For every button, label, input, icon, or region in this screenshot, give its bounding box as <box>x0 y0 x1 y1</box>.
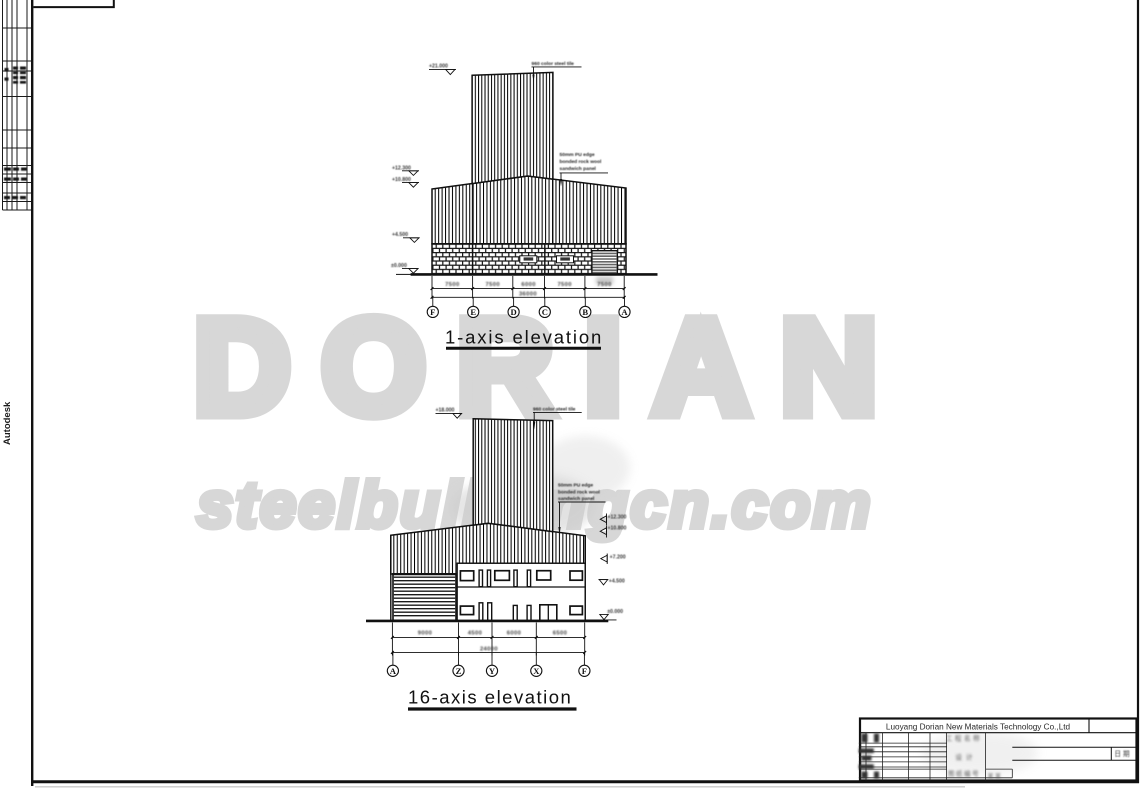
svg-text:960 color steel tile: 960 color steel tile <box>533 407 576 413</box>
svg-text:7500: 7500 <box>486 282 501 288</box>
svg-text:D: D <box>510 307 516 317</box>
svg-text:+12.300: +12.300 <box>608 515 627 521</box>
svg-text:F: F <box>430 307 435 317</box>
svg-text:16-axis elevation: 16-axis elevation <box>408 687 572 708</box>
svg-text:50mm PU edge: 50mm PU edge <box>558 483 593 489</box>
svg-text:50mm PU edge: 50mm PU edge <box>560 152 595 158</box>
svg-text:Luoyang Dorian New Materials T: Luoyang Dorian New Materials Technology … <box>886 722 1071 731</box>
svg-text:6000: 6000 <box>521 282 536 288</box>
svg-text:+10.800: +10.800 <box>608 525 627 531</box>
svg-text:7500: 7500 <box>597 282 612 288</box>
svg-text:7500: 7500 <box>557 282 572 288</box>
svg-text:+21.000: +21.000 <box>429 64 448 70</box>
svg-text:日期: 日期 <box>1114 750 1131 758</box>
svg-text:960 color steel tile: 960 color steel tile <box>532 61 575 67</box>
svg-text:设计: 设计 <box>955 753 976 762</box>
svg-text:E: E <box>470 307 476 317</box>
svg-text:工程名称: 工程名称 <box>946 734 982 743</box>
svg-text:1-axis elevation: 1-axis elevation <box>445 327 603 348</box>
svg-text:±0.000: ±0.000 <box>391 263 407 269</box>
svg-text:9000: 9000 <box>418 631 433 637</box>
svg-text:+4.500: +4.500 <box>392 232 408 238</box>
svg-text:C: C <box>542 307 548 317</box>
svg-text:A: A <box>621 307 628 317</box>
svg-text:sandwich panel: sandwich panel <box>560 166 597 172</box>
svg-text:DORIAN: DORIAN <box>194 293 909 442</box>
svg-text:A: A <box>390 666 397 676</box>
svg-text:bonded rock wool: bonded rock wool <box>558 489 600 495</box>
svg-text:36000: 36000 <box>519 292 537 298</box>
svg-text:7500: 7500 <box>445 282 460 288</box>
svg-text:F: F <box>582 666 587 676</box>
svg-text:+4.500: +4.500 <box>609 579 625 585</box>
svg-text:图纸编号: 图纸编号 <box>948 769 980 778</box>
svg-text:6500: 6500 <box>553 631 568 637</box>
svg-text:sandwich panel: sandwich panel <box>558 496 595 502</box>
svg-text:Y: Y <box>489 666 496 676</box>
svg-text:bonded rock wool: bonded rock wool <box>560 159 602 165</box>
svg-text:Autodesk: Autodesk <box>2 401 13 445</box>
svg-text:某某: 某某 <box>987 773 1002 780</box>
svg-text:Z: Z <box>456 666 462 676</box>
svg-text:6000: 6000 <box>507 631 522 637</box>
svg-text:24000: 24000 <box>480 647 498 653</box>
svg-text:±0.000: ±0.000 <box>607 609 623 615</box>
svg-text:X: X <box>533 666 540 676</box>
svg-text:+7.200: +7.200 <box>610 555 626 561</box>
svg-text:B: B <box>582 307 588 317</box>
svg-text:+10.800: +10.800 <box>392 177 411 183</box>
svg-text:+18.000: +18.000 <box>436 408 455 414</box>
svg-text:4500: 4500 <box>468 631 483 637</box>
